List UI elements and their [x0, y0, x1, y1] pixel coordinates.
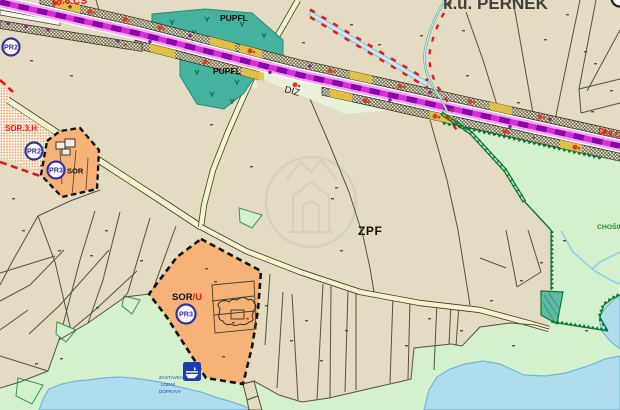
svg-text:SOR.3.H: SOR.3.H	[5, 124, 37, 133]
svg-text:PUPFL: PUPFL	[220, 13, 248, 23]
svg-text:ZPF: ZPF	[358, 224, 382, 238]
svg-text:PR3: PR3	[179, 309, 193, 318]
svg-text:DOPRAVY: DOPRAVY	[159, 389, 181, 394]
svg-text:PR2: PR2	[4, 42, 18, 51]
svg-text:ZASTÁVKA: ZASTÁVKA	[159, 374, 184, 380]
svg-text:DI.6.CS: DI.6.CS	[52, 0, 87, 7]
svg-text:LODNÍ: LODNÍ	[161, 381, 176, 387]
svg-text:CHOŠ04: CHOŠ04	[597, 222, 620, 231]
svg-text:PUPFL: PUPFL	[213, 66, 241, 76]
svg-text:PR3: PR3	[49, 165, 63, 174]
svg-text:SOR/U: SOR/U	[172, 292, 202, 303]
svg-text:PR2: PR2	[27, 146, 41, 155]
svg-text:k.ú. PERNEK: k.ú. PERNEK	[443, 0, 549, 13]
svg-text:SOR: SOR	[67, 167, 84, 176]
